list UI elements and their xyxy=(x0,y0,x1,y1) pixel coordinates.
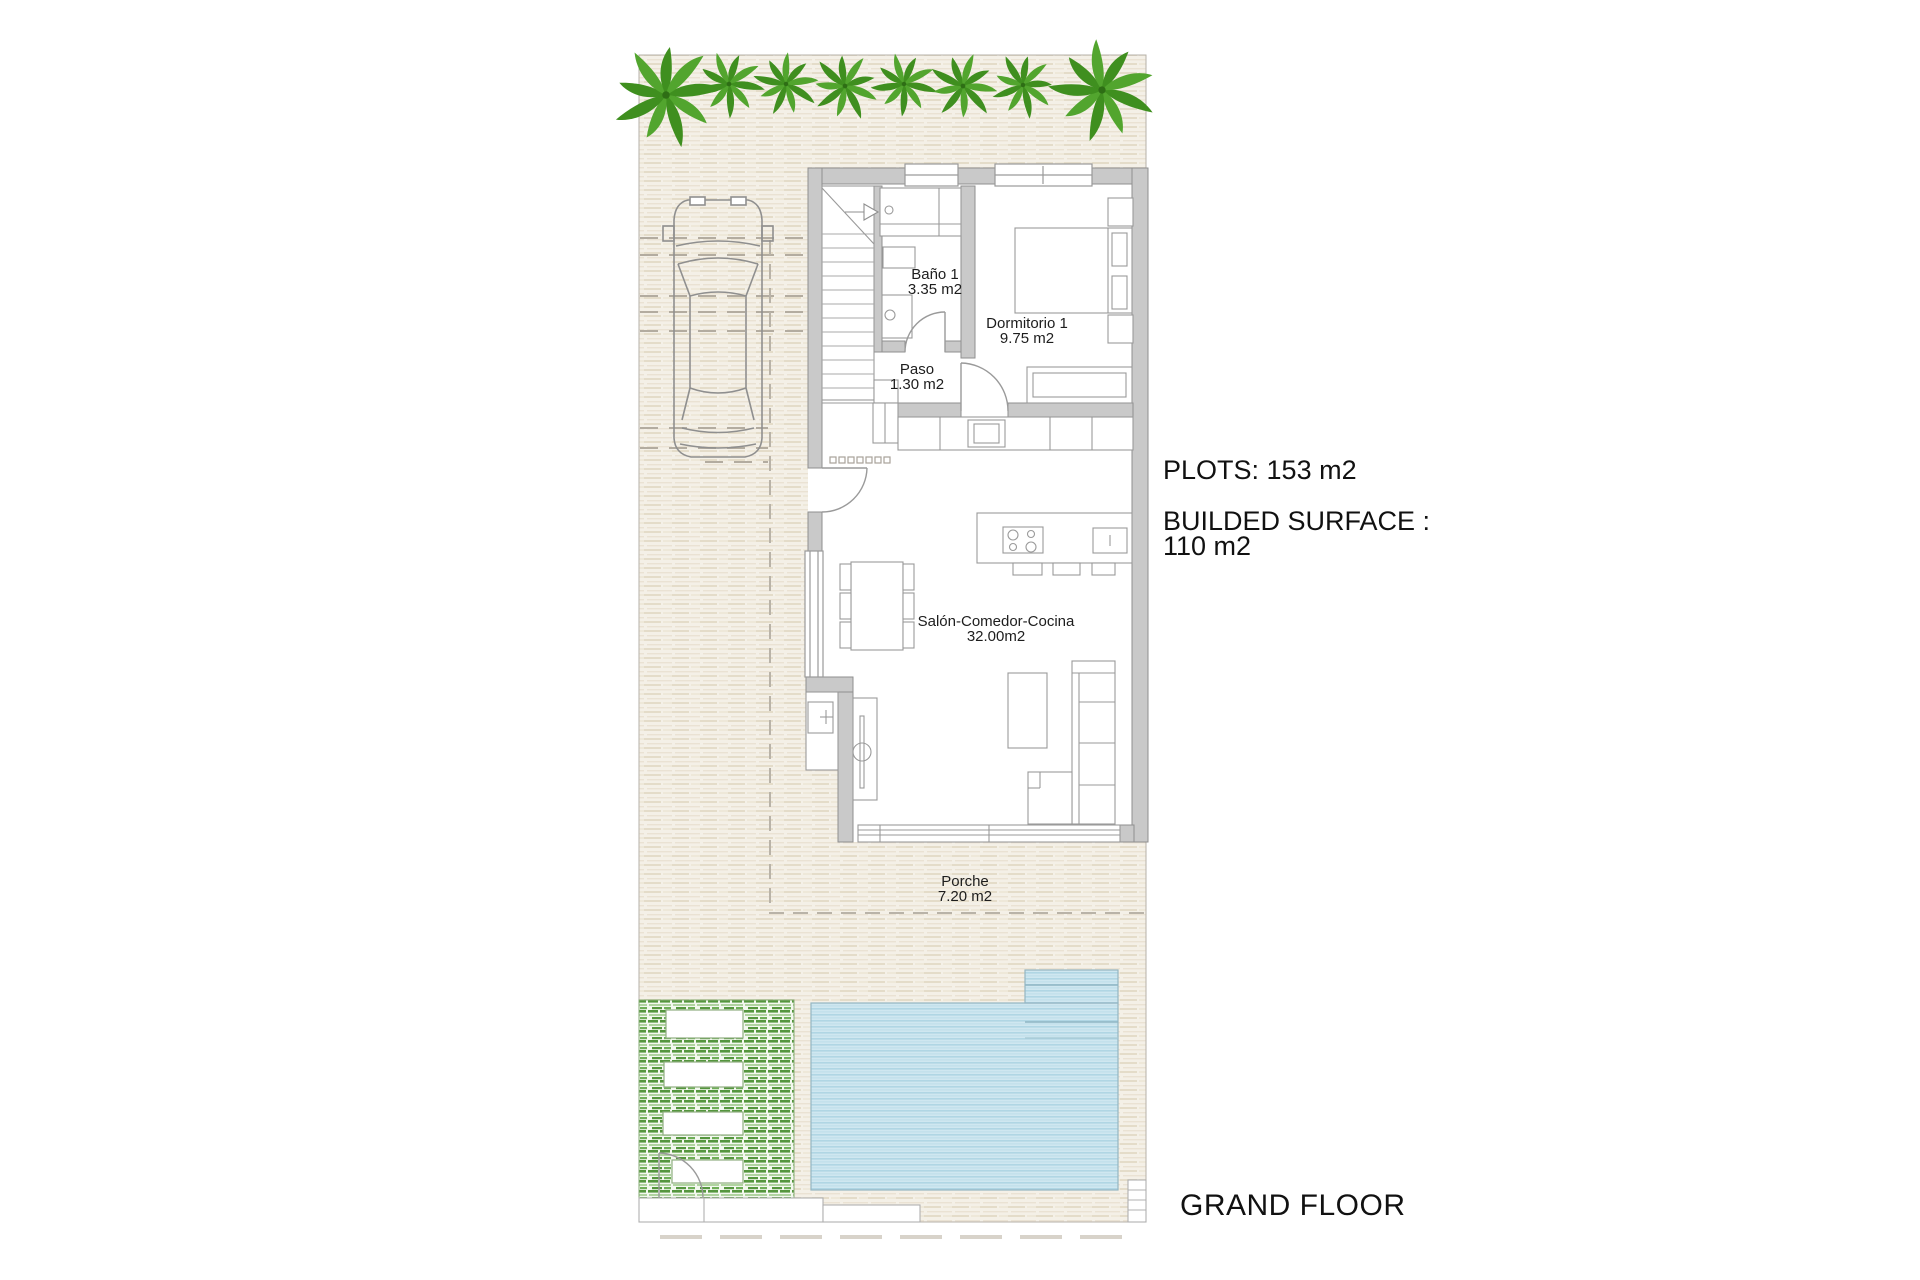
room-area: 7.20 m2 xyxy=(938,889,992,904)
room-name: Salón-Comedor-Cocina xyxy=(918,614,1075,629)
builded-surface-text: BUILDED SURFACE : 110 m2 xyxy=(1163,509,1430,559)
stool xyxy=(1013,563,1042,575)
corner-steps xyxy=(1128,1180,1146,1222)
room-area: 1.30 m2 xyxy=(890,377,944,392)
room-label-porche: Porche 7.20 m2 xyxy=(938,874,992,904)
planter xyxy=(663,1112,743,1135)
sofa-chaise xyxy=(1028,772,1072,824)
hob xyxy=(1003,527,1043,553)
chair xyxy=(903,622,914,648)
stool xyxy=(1053,563,1080,575)
sliding-glass-door xyxy=(858,825,1120,842)
planter xyxy=(672,1160,743,1183)
builded-surface-line2: 110 m2 xyxy=(1163,534,1430,559)
room-label-dormitorio: Dormitorio 1 9.75 m2 xyxy=(986,316,1068,346)
room-name: Baño 1 xyxy=(908,267,962,282)
nightstand xyxy=(1108,198,1133,226)
bedroom-furniture xyxy=(1015,198,1133,403)
chair xyxy=(840,564,851,590)
room-name: Porche xyxy=(938,874,992,889)
living-room-window xyxy=(805,551,823,677)
tv-unit xyxy=(853,698,877,800)
tv xyxy=(860,716,864,788)
room-label-bano: Baño 1 3.35 m2 xyxy=(908,267,962,297)
stool xyxy=(1092,563,1115,575)
floor-plan-page: Baño 1 3.35 m2 Dormitorio 1 9.75 m2 Paso… xyxy=(0,0,1920,1280)
room-area: 9.75 m2 xyxy=(986,331,1068,346)
chair xyxy=(903,593,914,619)
swimming-pool xyxy=(811,970,1118,1190)
pool-steps xyxy=(1025,970,1118,1003)
room-label-paso: Paso 1.30 m2 xyxy=(890,362,944,392)
garden xyxy=(639,1000,794,1198)
room-area: 3.35 m2 xyxy=(908,282,962,297)
floor-title: GRAND FLOOR xyxy=(1180,1190,1406,1222)
planter xyxy=(666,1010,743,1038)
bathroom-sink xyxy=(882,295,912,338)
room-name: Dormitorio 1 xyxy=(986,316,1068,331)
kitchen-counter xyxy=(898,417,1133,450)
chair xyxy=(840,622,851,648)
coffee-table xyxy=(1008,673,1047,748)
nightstand xyxy=(1108,315,1133,343)
plots-text: PLOTS: 153 m2 xyxy=(1163,458,1357,483)
room-label-salon: Salón-Comedor-Cocina 32.00m2 xyxy=(918,614,1075,644)
chair xyxy=(840,593,851,619)
dining-table xyxy=(851,562,903,650)
chair xyxy=(903,564,914,590)
dining-set xyxy=(840,562,914,650)
room-name: Paso xyxy=(890,362,944,377)
utility-niche xyxy=(806,692,838,770)
toilet xyxy=(883,247,915,268)
room-area: 32.00m2 xyxy=(918,629,1075,644)
planter xyxy=(664,1062,743,1087)
